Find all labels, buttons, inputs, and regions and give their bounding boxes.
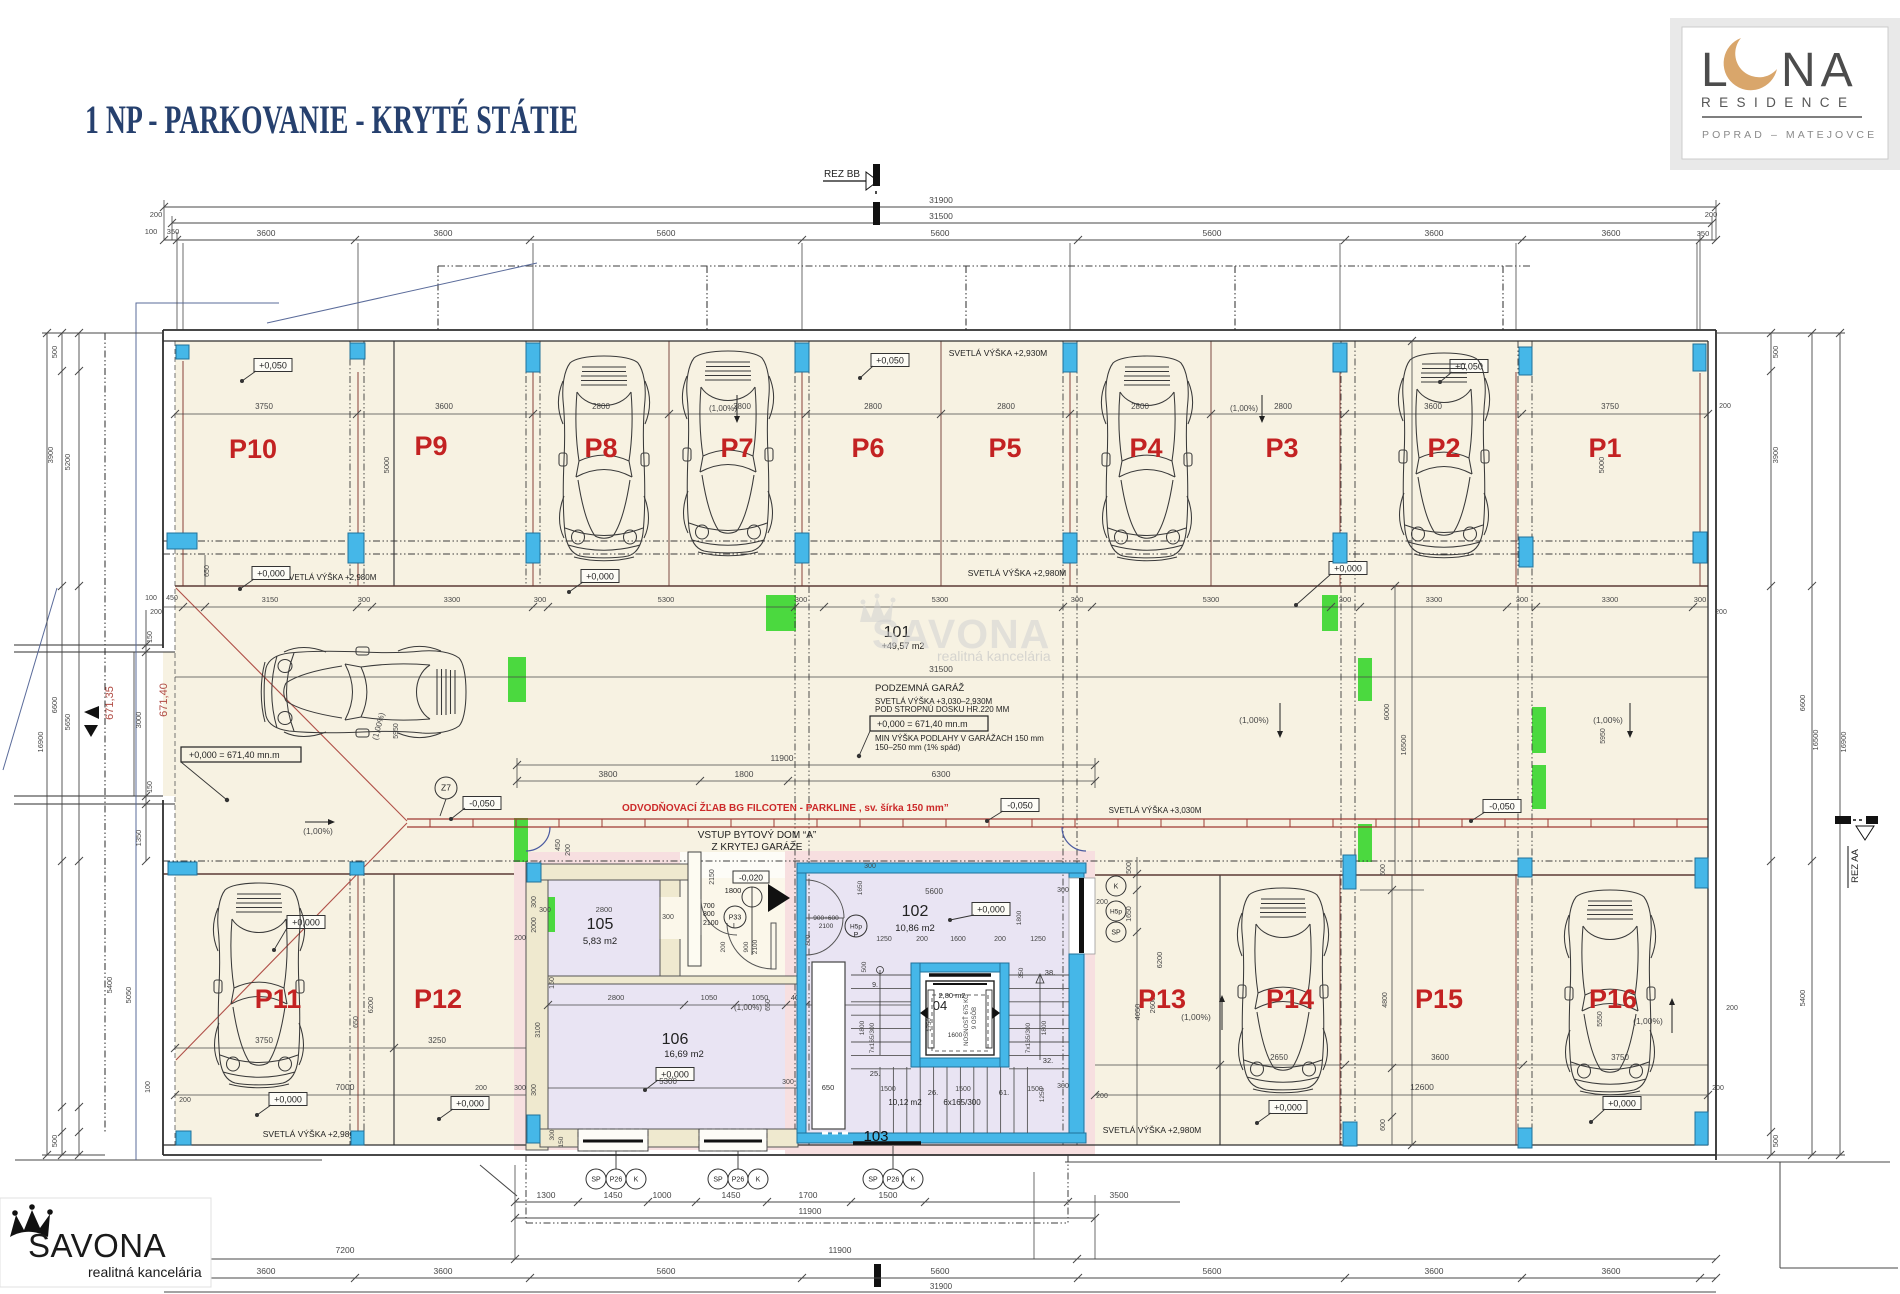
svg-text:200: 200 <box>565 844 572 856</box>
svg-text:6x165/300: 6x165/300 <box>943 1098 981 1107</box>
svg-text:100: 100 <box>145 1081 152 1093</box>
svg-text:150: 150 <box>147 631 154 643</box>
svg-text:61.: 61. <box>999 1088 1009 1097</box>
svg-text:3600: 3600 <box>1602 1266 1621 1276</box>
svg-text:1600: 1600 <box>948 1032 963 1039</box>
svg-text:200: 200 <box>1096 899 1108 906</box>
svg-text:6600: 6600 <box>1798 695 1807 712</box>
svg-text:500: 500 <box>805 934 812 945</box>
svg-text:L: L <box>733 923 737 930</box>
svg-text:-0,050: -0,050 <box>1007 801 1033 811</box>
svg-text:5600: 5600 <box>931 228 950 238</box>
svg-text:P11: P11 <box>255 984 302 1014</box>
svg-text:7200: 7200 <box>336 1245 355 1255</box>
svg-text:P26: P26 <box>610 1177 623 1184</box>
svg-text:3750: 3750 <box>255 402 273 411</box>
svg-text:2800: 2800 <box>997 402 1015 411</box>
svg-text:H5p: H5p <box>850 924 862 931</box>
svg-text:1500: 1500 <box>955 1086 971 1093</box>
svg-text:5600: 5600 <box>1203 228 1222 238</box>
svg-text:5600: 5600 <box>1203 1266 1222 1276</box>
svg-text:200: 200 <box>1719 403 1731 410</box>
svg-text:1800: 1800 <box>725 886 742 895</box>
svg-text:+0,050: +0,050 <box>1455 362 1483 372</box>
svg-text:600: 600 <box>1380 1119 1387 1131</box>
svg-text:200: 200 <box>1705 210 1718 219</box>
svg-text:5600: 5600 <box>657 228 676 238</box>
svg-text:VSTUP BYTOVÝ DOM “A”: VSTUP BYTOVÝ DOM “A” <box>698 828 817 841</box>
svg-text:300: 300 <box>534 595 547 604</box>
svg-text:1800: 1800 <box>735 769 754 779</box>
svg-text:1450: 1450 <box>722 1190 741 1200</box>
svg-text:7000: 7000 <box>336 1082 355 1092</box>
svg-text:106: 106 <box>662 1031 689 1048</box>
svg-text:1250: 1250 <box>1030 936 1046 943</box>
svg-text:K: K <box>911 1177 916 1184</box>
svg-text:(1,00%): (1,00%) <box>1593 715 1623 725</box>
svg-text:3750: 3750 <box>1601 402 1619 411</box>
svg-text:P1: P1 <box>1588 433 1621 463</box>
svg-text:1050: 1050 <box>701 993 718 1002</box>
svg-text:2650: 2650 <box>1270 1053 1288 1062</box>
svg-text:MIN VÝŠKA PODLAHY V GARÁŽACH 1: MIN VÝŠKA PODLAHY V GARÁŽACH 150 mm <box>875 734 1044 743</box>
svg-text:REZ BB: REZ BB <box>824 169 860 180</box>
svg-text:+0,000: +0,000 <box>292 918 320 928</box>
svg-text:1050: 1050 <box>752 993 769 1002</box>
svg-text:200: 200 <box>994 936 1006 943</box>
svg-text:3500: 3500 <box>1110 1190 1129 1200</box>
svg-text:+0,000: +0,000 <box>456 1099 484 1109</box>
svg-text:4800: 4800 <box>1382 992 1389 1008</box>
svg-text:16500: 16500 <box>1399 735 1408 756</box>
svg-text:-0,020: -0,020 <box>739 873 763 883</box>
svg-text:P7: P7 <box>720 433 753 463</box>
svg-text:300: 300 <box>662 914 674 921</box>
svg-text:1650: 1650 <box>1126 906 1133 922</box>
svg-text:5,83 m2: 5,83 m2 <box>583 936 617 947</box>
svg-text:300: 300 <box>549 1129 556 1140</box>
svg-text:105: 105 <box>587 916 614 933</box>
svg-text:3300: 3300 <box>444 595 461 604</box>
svg-text:600: 600 <box>1380 864 1387 876</box>
svg-text:12600: 12600 <box>1410 1082 1434 1092</box>
svg-text:31900: 31900 <box>929 195 953 205</box>
svg-text:5300: 5300 <box>1203 595 1220 604</box>
svg-text:K: K <box>1114 884 1119 891</box>
svg-text:650: 650 <box>353 1016 360 1028</box>
svg-text:1500: 1500 <box>879 1190 898 1200</box>
svg-text:31900: 31900 <box>930 1282 953 1291</box>
svg-text:2100: 2100 <box>752 939 759 954</box>
svg-text:300: 300 <box>1057 1083 1069 1090</box>
svg-text:102: 102 <box>902 903 929 920</box>
svg-text:1800: 1800 <box>859 1020 866 1035</box>
svg-text:SP: SP <box>713 1177 723 1184</box>
svg-text:671,40: 671,40 <box>158 683 170 717</box>
svg-text:5600: 5600 <box>931 1266 950 1276</box>
svg-text:16900: 16900 <box>36 732 45 753</box>
svg-text:H5p: H5p <box>1110 909 1122 916</box>
svg-text:1800: 1800 <box>1016 910 1023 925</box>
svg-text:+0,000 = 671,40 mn.m: +0,000 = 671,40 mn.m <box>877 719 968 729</box>
svg-text:SP: SP <box>868 1177 878 1184</box>
svg-text:3000: 3000 <box>134 712 143 729</box>
svg-text:3600: 3600 <box>1424 402 1442 411</box>
svg-text:(1,00%): (1,00%) <box>1230 404 1258 413</box>
svg-text:300: 300 <box>1694 595 1707 604</box>
svg-text:900: 900 <box>743 941 750 952</box>
svg-text:5300: 5300 <box>659 1077 677 1086</box>
svg-text:1250: 1250 <box>876 936 892 943</box>
svg-text:P: P <box>854 932 859 939</box>
svg-text:P4: P4 <box>1129 433 1162 463</box>
svg-text:10,12 m2: 10,12 m2 <box>888 1098 922 1107</box>
svg-text:K: K <box>634 1177 639 1184</box>
svg-text:L: L <box>1701 44 1728 97</box>
svg-text:5300: 5300 <box>932 595 949 604</box>
svg-text:200: 200 <box>1726 1005 1738 1012</box>
svg-text:671,35: 671,35 <box>104 686 116 720</box>
svg-text:450: 450 <box>555 839 562 851</box>
svg-text:5600: 5600 <box>925 887 943 896</box>
svg-text:SP: SP <box>591 1177 601 1184</box>
svg-text:P16: P16 <box>1589 984 1637 1014</box>
svg-text:10,86 m2: 10,86 m2 <box>895 923 935 934</box>
svg-text:3600: 3600 <box>1431 1053 1449 1062</box>
svg-text:3600: 3600 <box>1425 228 1444 238</box>
svg-text:7x165/300: 7x165/300 <box>869 1022 876 1053</box>
svg-text:RESIDENCE: RESIDENCE <box>1701 95 1855 110</box>
svg-text:200: 200 <box>916 936 928 943</box>
svg-text:(1,00%): (1,00%) <box>734 1003 762 1012</box>
svg-text:P12: P12 <box>414 984 462 1014</box>
svg-text:P9: P9 <box>414 431 447 461</box>
svg-text:Z7: Z7 <box>441 783 451 793</box>
svg-text:P2: P2 <box>1427 433 1460 463</box>
svg-text:REZ AA: REZ AA <box>1850 848 1861 882</box>
svg-text:+0,050: +0,050 <box>876 356 904 366</box>
svg-text:P15: P15 <box>1415 984 1463 1014</box>
svg-text:04: 04 <box>933 998 947 1013</box>
svg-text:P33: P33 <box>729 915 742 922</box>
svg-text:SAVONA: SAVONA <box>28 1227 166 1264</box>
svg-text:500: 500 <box>861 961 868 972</box>
svg-text:POPRAD – MATEJOVCE: POPRAD – MATEJOVCE <box>1702 129 1877 141</box>
svg-text:K: K <box>756 1177 761 1184</box>
svg-text:200: 200 <box>1096 1093 1108 1100</box>
svg-text:POD STROPNÚ DOSKU HR.220 MM: POD STROPNÚ DOSKU HR.220 MM <box>875 705 1010 714</box>
svg-text:2100: 2100 <box>819 923 834 930</box>
svg-text:300: 300 <box>1071 595 1084 604</box>
svg-text:25.: 25. <box>870 1069 880 1078</box>
svg-text:5950: 5950 <box>1600 728 1607 744</box>
svg-text:3600: 3600 <box>435 402 453 411</box>
svg-text:700: 700 <box>703 903 715 910</box>
svg-text:-0,050: -0,050 <box>1489 802 1515 812</box>
svg-text:9 OSÔB: 9 OSÔB <box>971 1007 978 1029</box>
svg-text:6000: 6000 <box>1382 704 1391 721</box>
svg-text:3750: 3750 <box>255 1036 273 1045</box>
svg-text:500: 500 <box>1771 1135 1780 1148</box>
svg-text:SVETLÁ VÝŠKA +2,980M: SVETLÁ VÝŠKA +2,980M <box>284 573 377 582</box>
svg-text:(1,00%): (1,00%) <box>303 826 333 836</box>
svg-text:NOSNOSŤ 675 KG: NOSNOSŤ 675 KG <box>962 994 970 1046</box>
svg-text:5400: 5400 <box>1798 990 1807 1007</box>
svg-text:1750: 1750 <box>927 1018 933 1032</box>
svg-text:3150: 3150 <box>262 595 279 604</box>
svg-text:+0,000: +0,000 <box>274 1095 302 1105</box>
svg-text:-0,050: -0,050 <box>469 799 495 809</box>
svg-text:5300: 5300 <box>658 595 675 604</box>
svg-text:1600: 1600 <box>950 936 966 943</box>
svg-text:2000: 2000 <box>531 917 538 933</box>
svg-text:P5: P5 <box>988 433 1021 463</box>
svg-text:650: 650 <box>204 565 211 577</box>
svg-text:1500: 1500 <box>880 1086 896 1093</box>
svg-text:1800: 1800 <box>1041 1020 1048 1035</box>
svg-text:3600: 3600 <box>434 228 453 238</box>
svg-text:3600: 3600 <box>434 1266 453 1276</box>
svg-text:16500: 16500 <box>1811 730 1820 751</box>
svg-text:300: 300 <box>864 863 876 870</box>
svg-text:2800: 2800 <box>608 993 625 1002</box>
svg-text:1250: 1250 <box>1039 1087 1046 1102</box>
svg-text:(1,00%): (1,00%) <box>1633 1016 1663 1026</box>
svg-text:1450: 1450 <box>604 1190 623 1200</box>
svg-text:500: 500 <box>1771 346 1780 359</box>
svg-text:P6: P6 <box>851 433 884 463</box>
svg-text:SVETLÁ VÝŠKA +2,980M: SVETLÁ VÝŠKA +2,980M <box>1103 1125 1202 1135</box>
svg-text:5650: 5650 <box>63 714 72 731</box>
svg-text:150: 150 <box>147 781 154 793</box>
svg-text:6600: 6600 <box>50 697 59 714</box>
svg-text:3600: 3600 <box>257 1266 276 1276</box>
svg-text:11900: 11900 <box>770 753 793 763</box>
svg-text:1300: 1300 <box>537 1190 556 1200</box>
svg-text:200: 200 <box>179 1097 191 1104</box>
svg-text:2800: 2800 <box>596 905 613 914</box>
svg-text:+0,000: +0,000 <box>1274 1103 1302 1113</box>
svg-text:SVETLÁ VÝŠKA +2,930M: SVETLÁ VÝŠKA +2,930M <box>949 348 1048 358</box>
svg-text:9.: 9. <box>872 982 878 989</box>
svg-text:+0,050: +0,050 <box>259 361 287 371</box>
svg-text:+0,000: +0,000 <box>977 905 1005 915</box>
svg-text:200: 200 <box>514 935 526 942</box>
svg-text:P14: P14 <box>1266 984 1314 1014</box>
svg-text:16,69 m2: 16,69 m2 <box>664 1049 704 1060</box>
svg-text:P26: P26 <box>887 1177 900 1184</box>
svg-text:5200: 5200 <box>63 454 72 471</box>
svg-text:11900: 11900 <box>798 1206 821 1216</box>
svg-text:SVETLÁ VÝŠKA +2,980M: SVETLÁ VÝŠKA +2,980M <box>263 1129 362 1139</box>
svg-text:+0,000: +0,000 <box>257 569 285 579</box>
svg-text:ODVODŇOVACÍ ŽĽAB BG FILCOTEN: ODVODŇOVACÍ ŽĽAB BG FILCOTEN - PARKLINE … <box>622 801 949 814</box>
svg-text:+0,000: +0,000 <box>1334 564 1362 574</box>
svg-text:500: 500 <box>1126 862 1133 874</box>
svg-text:7x165/300: 7x165/300 <box>1025 1022 1032 1053</box>
svg-text:300: 300 <box>1516 595 1529 604</box>
svg-text:P26: P26 <box>732 1177 745 1184</box>
svg-text:P10: P10 <box>229 434 277 464</box>
svg-text:2100: 2100 <box>703 920 719 927</box>
svg-text:3800: 3800 <box>599 769 618 779</box>
svg-text:200: 200 <box>1715 609 1727 616</box>
svg-text:300: 300 <box>531 1084 538 1096</box>
svg-text:1650: 1650 <box>857 880 864 895</box>
svg-text:(1,00%): (1,00%) <box>709 404 737 413</box>
svg-text:2800: 2800 <box>864 402 882 411</box>
svg-text:900+600: 900+600 <box>813 915 839 922</box>
svg-text:100: 100 <box>145 227 158 236</box>
svg-text:1700: 1700 <box>799 1190 818 1200</box>
svg-text:5400: 5400 <box>105 977 114 994</box>
svg-text:3250: 3250 <box>428 1036 446 1045</box>
svg-text:650: 650 <box>822 1083 835 1092</box>
svg-text:1 NP - PARKOVANIE - KRYTÉ STÁT: 1 NP - PARKOVANIE - KRYTÉ STÁTIE <box>85 97 578 142</box>
svg-text:150–250 mm (1% spád): 150–250 mm (1% spád) <box>875 743 961 752</box>
svg-text:200: 200 <box>150 210 163 219</box>
svg-text:200: 200 <box>150 609 162 616</box>
svg-text:5600: 5600 <box>657 1266 676 1276</box>
svg-text:300: 300 <box>795 595 808 604</box>
svg-text:P13: P13 <box>1138 984 1186 1014</box>
svg-text:+0,000 = 671,40 mn.m: +0,000 = 671,40 mn.m <box>189 750 280 760</box>
svg-text:300: 300 <box>358 595 371 604</box>
svg-text:300: 300 <box>1339 595 1352 604</box>
svg-text:6200: 6200 <box>1155 952 1164 969</box>
svg-text:1000: 1000 <box>653 1190 672 1200</box>
svg-text:+0,000: +0,000 <box>1608 1099 1636 1109</box>
svg-text:SP: SP <box>1111 930 1121 937</box>
svg-text:5000: 5000 <box>382 457 391 474</box>
svg-text:realitná kancelária: realitná kancelária <box>937 648 1051 664</box>
svg-text:P8: P8 <box>584 433 617 463</box>
svg-text:200: 200 <box>720 941 727 952</box>
svg-text:300: 300 <box>539 907 551 914</box>
svg-text:800: 800 <box>703 911 715 918</box>
svg-text:SVETLÁ VÝŠKA +2,980M: SVETLÁ VÝŠKA +2,980M <box>968 568 1067 578</box>
svg-text:2150: 2150 <box>709 869 716 885</box>
svg-text:500: 500 <box>50 346 59 359</box>
svg-text:300: 300 <box>1057 887 1069 894</box>
svg-text:(1,00%): (1,00%) <box>1239 715 1269 725</box>
svg-text:realitná kancelária: realitná kancelária <box>88 1264 202 1280</box>
svg-text:300: 300 <box>531 896 538 908</box>
svg-text:26.: 26. <box>928 1088 938 1097</box>
svg-text:1350: 1350 <box>134 830 143 847</box>
svg-text:31500: 31500 <box>929 664 953 674</box>
svg-text:300: 300 <box>782 1079 794 1086</box>
svg-text:450: 450 <box>166 595 178 602</box>
svg-text:3600: 3600 <box>1602 228 1621 238</box>
svg-text:3900: 3900 <box>46 447 55 464</box>
svg-text:PODZEMNÁ GARÁŽ: PODZEMNÁ GARÁŽ <box>875 683 964 694</box>
svg-text:350: 350 <box>1697 229 1710 238</box>
svg-text:11900: 11900 <box>828 1245 851 1255</box>
svg-text:P3: P3 <box>1265 433 1298 463</box>
svg-text:Z KRYTEJ GARÁŽE: Z KRYTEJ GARÁŽE <box>712 840 803 853</box>
svg-text:3300: 3300 <box>1602 595 1619 604</box>
svg-text:38.: 38. <box>1045 968 1055 977</box>
svg-text:300: 300 <box>514 1085 526 1092</box>
svg-text:350: 350 <box>1018 967 1025 978</box>
svg-text:500: 500 <box>50 1135 59 1148</box>
svg-text:3300: 3300 <box>1426 595 1443 604</box>
svg-text:100: 100 <box>145 595 157 602</box>
svg-text:32.: 32. <box>1043 1056 1053 1065</box>
svg-text:200: 200 <box>1712 1085 1724 1092</box>
svg-text:3600: 3600 <box>257 228 276 238</box>
svg-text:3900: 3900 <box>1771 447 1780 464</box>
svg-text:16900: 16900 <box>1839 732 1848 753</box>
svg-text:2800: 2800 <box>592 402 610 411</box>
svg-text:+0,000: +0,000 <box>586 572 614 582</box>
svg-text:6200: 6200 <box>366 997 375 1014</box>
svg-text:3100: 3100 <box>535 1022 542 1038</box>
svg-text:31500: 31500 <box>929 211 953 221</box>
svg-text:6300: 6300 <box>932 769 951 779</box>
svg-text:150: 150 <box>549 977 556 989</box>
svg-text:150: 150 <box>558 1136 565 1147</box>
svg-text:200: 200 <box>475 1085 487 1092</box>
svg-text:NA: NA <box>1781 44 1858 97</box>
svg-text:3600: 3600 <box>1425 1266 1444 1276</box>
svg-text:SVETLÁ VÝŠKA +3,030M: SVETLÁ VÝŠKA +3,030M <box>1109 806 1202 815</box>
svg-text:5050: 5050 <box>124 987 133 1004</box>
svg-text:2800: 2800 <box>1274 402 1292 411</box>
